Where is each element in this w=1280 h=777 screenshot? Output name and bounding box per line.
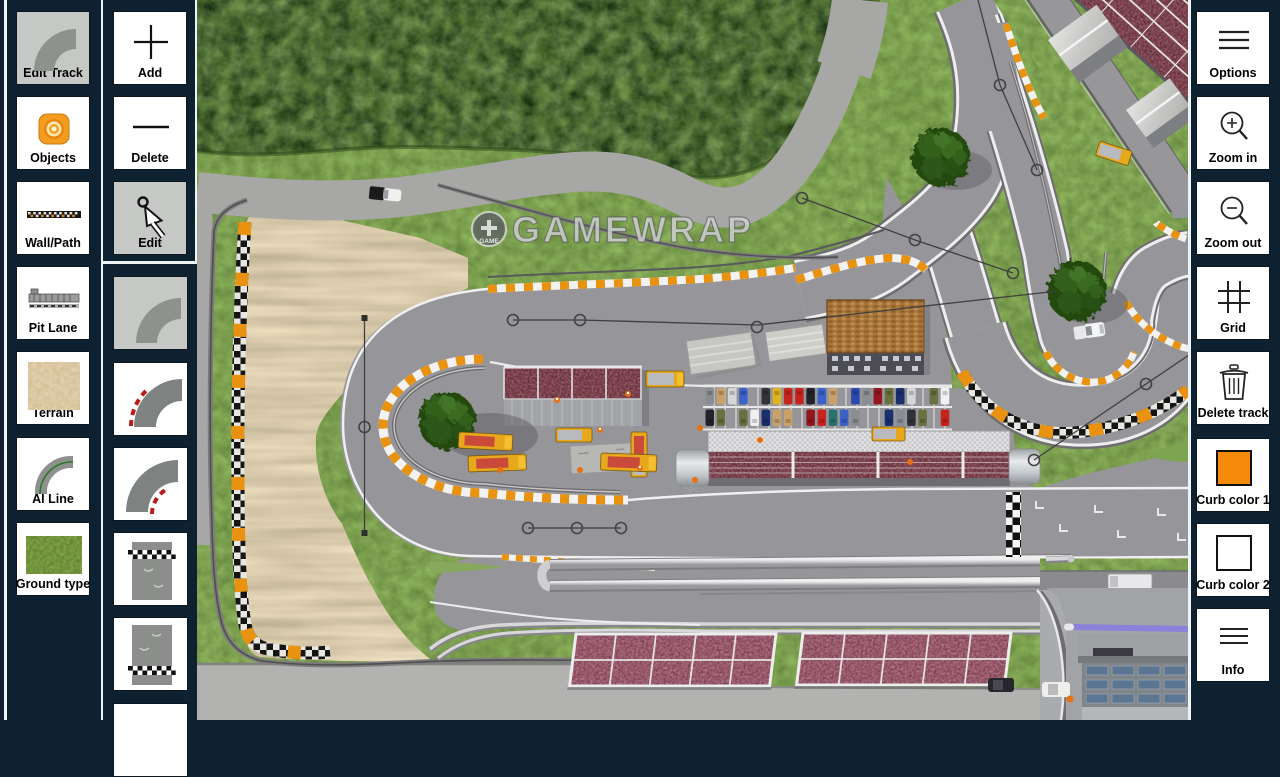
svg-text:GAME: GAME xyxy=(479,238,499,245)
svg-text:GAMEWRAP: GAMEWRAP xyxy=(512,209,754,250)
